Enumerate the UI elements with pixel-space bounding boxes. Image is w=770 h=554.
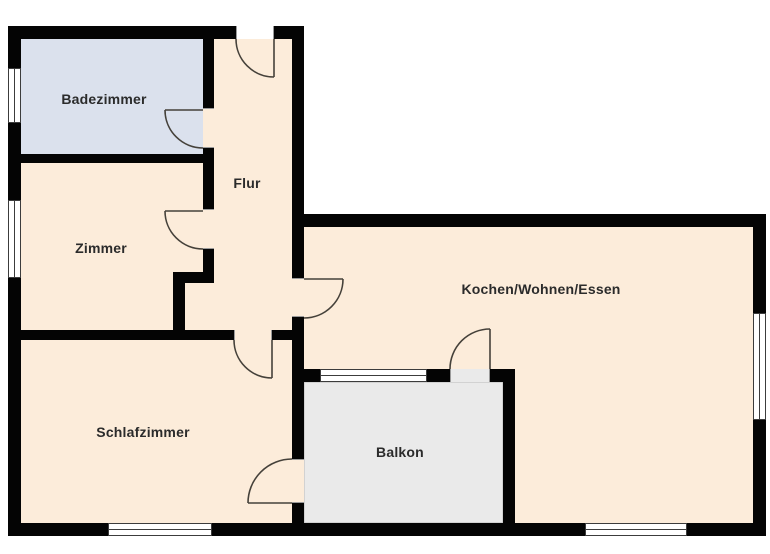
- wall: [753, 420, 766, 536]
- room-label-zimmer: Zimmer: [75, 240, 127, 256]
- wall: [687, 523, 766, 536]
- wall: [292, 382, 304, 459]
- wall: [8, 26, 21, 68]
- window: [9, 69, 21, 123]
- room-label-badezimmer: Badezimmer: [61, 91, 147, 107]
- floor-plan: Badezimmer Flur Zimmer Kochen/Wohnen/Ess…: [0, 0, 770, 554]
- wall: [8, 278, 21, 523]
- wall: [21, 154, 214, 163]
- wall: [503, 369, 515, 523]
- wall: [8, 26, 236, 39]
- wall: [490, 369, 515, 382]
- wall: [292, 369, 320, 382]
- wall: [292, 26, 304, 278]
- wall: [753, 214, 766, 313]
- wall: [272, 330, 304, 340]
- window: [9, 201, 21, 278]
- window: [586, 524, 687, 536]
- bedroom-balcony-door-gap: [292, 459, 304, 503]
- room-label-flur: Flur: [233, 175, 261, 191]
- wall: [8, 523, 108, 536]
- bedroom-door-gap: [234, 330, 272, 340]
- window: [321, 370, 427, 382]
- room-label-balkon: Balkon: [376, 444, 424, 460]
- hall-living-door-gap: [292, 278, 304, 317]
- wall: [203, 39, 214, 108]
- window: [754, 314, 766, 420]
- floor-plan-canvas: Badezimmer Flur Zimmer Kochen/Wohnen/Ess…: [0, 0, 770, 554]
- zimmer-door-gap: [203, 209, 214, 249]
- wall: [292, 503, 304, 536]
- window: [109, 524, 212, 536]
- wall: [292, 317, 304, 369]
- wall: [503, 523, 585, 536]
- balcony-door-gap: [450, 369, 490, 382]
- wall: [212, 523, 516, 536]
- room-label-kochen-wohnen-essen: Kochen/Wohnen/Essen: [461, 281, 620, 297]
- room-label-schlafzimmer: Schlafzimmer: [96, 424, 190, 440]
- wall: [427, 369, 450, 382]
- wall: [8, 123, 21, 200]
- wall: [292, 214, 766, 227]
- bathroom-door-gap: [203, 108, 214, 148]
- wall: [21, 330, 234, 340]
- entrance-door-gap: [236, 26, 274, 39]
- wall: [173, 272, 185, 340]
